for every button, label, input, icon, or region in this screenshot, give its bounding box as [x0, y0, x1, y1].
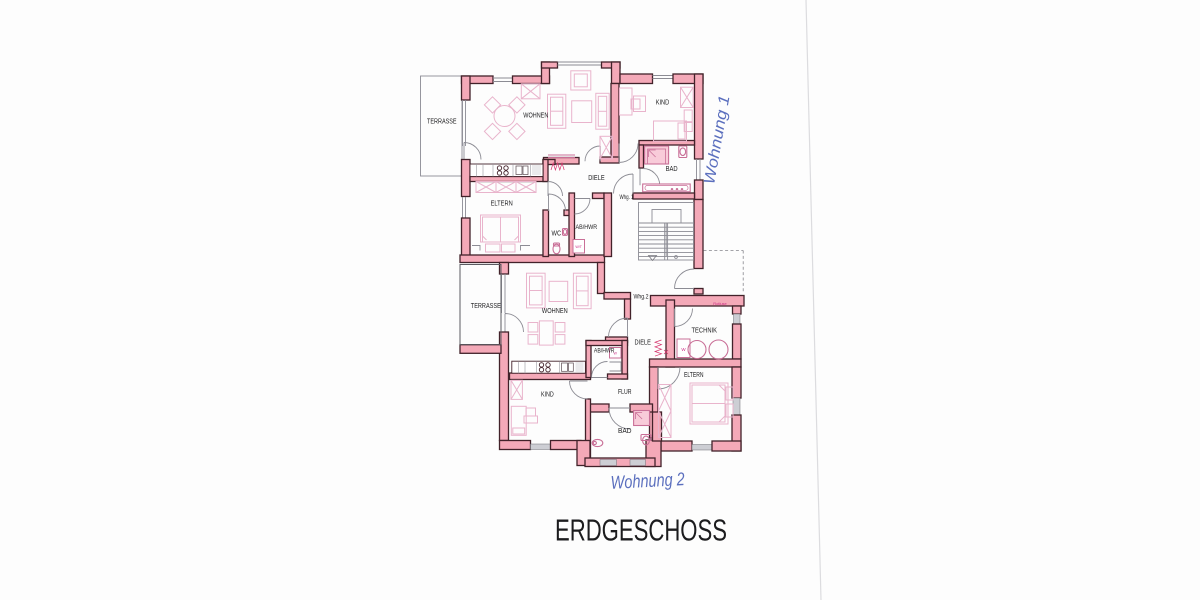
- svg-text:KIND: KIND: [656, 98, 670, 107]
- svg-text:AB/HWR: AB/HWR: [576, 224, 598, 231]
- svg-text:TERRASSE: TERRASSE: [471, 301, 501, 310]
- svg-text:ELTERN: ELTERN: [684, 370, 704, 379]
- svg-text:Whg. 1: Whg. 1: [620, 194, 634, 201]
- svg-text:Wohnung 2: Wohnung 2: [610, 468, 686, 493]
- svg-text:TERRASSE: TERRASSE: [427, 116, 457, 125]
- svg-text:WOHNEN: WOHNEN: [523, 111, 548, 120]
- svg-text:FLUR: FLUR: [618, 387, 632, 396]
- svg-text:KIND: KIND: [541, 389, 554, 398]
- svg-text:Whg.2: Whg.2: [634, 293, 649, 300]
- svg-text:BAD: BAD: [618, 426, 632, 435]
- svg-text:TECHNIK: TECHNIK: [692, 326, 718, 335]
- svg-text:WC: WC: [552, 229, 562, 238]
- svg-text:AB/HWR: AB/HWR: [594, 348, 615, 355]
- svg-text:DIELE: DIELE: [635, 338, 652, 347]
- svg-text:BAD: BAD: [666, 164, 678, 173]
- svg-text:WOHNEN: WOHNEN: [542, 306, 568, 315]
- svg-text:W/T: W/T: [575, 245, 582, 249]
- svg-text:ELTERN: ELTERN: [491, 198, 513, 207]
- svg-text:ERDGESCHOSS: ERDGESCHOSS: [555, 514, 727, 548]
- svg-text:Rotluse: Rotluse: [713, 301, 727, 306]
- svg-text:DIELE: DIELE: [588, 173, 605, 182]
